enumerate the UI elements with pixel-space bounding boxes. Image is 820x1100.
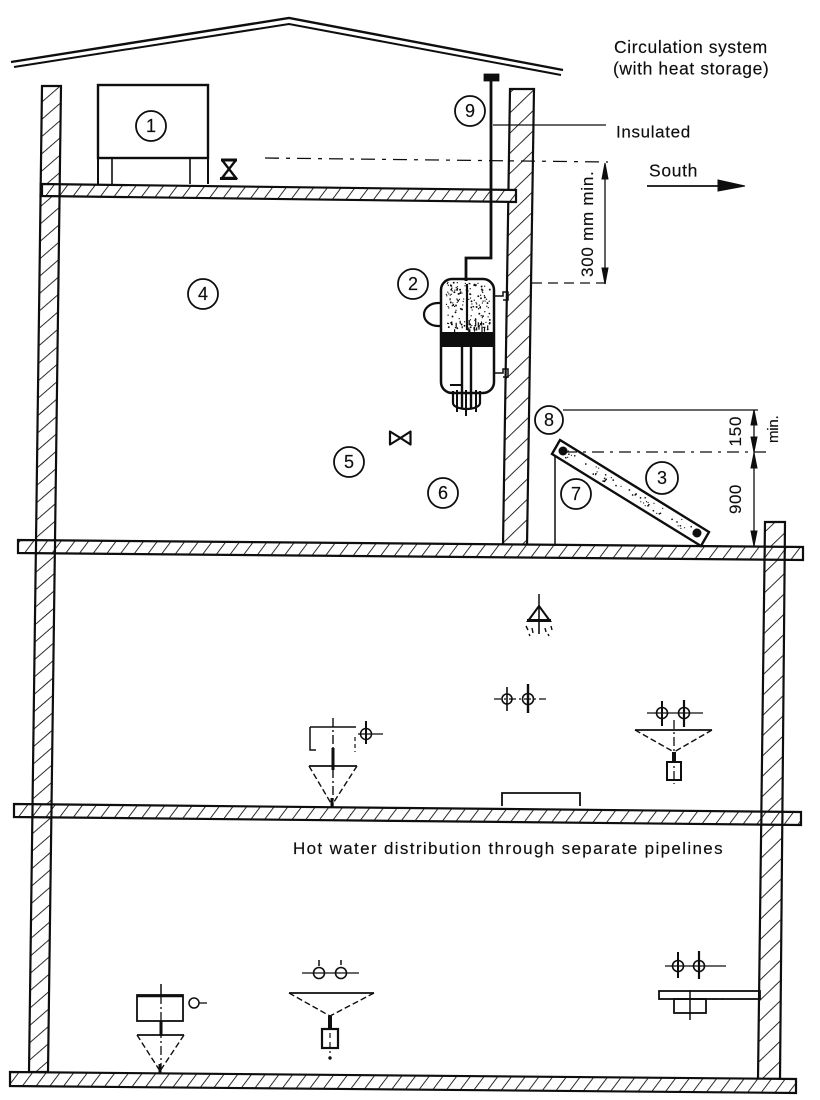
svg-text:South: South bbox=[649, 161, 698, 181]
svg-text:1: 1 bbox=[146, 116, 156, 136]
svg-text:Circulation system: Circulation system bbox=[614, 37, 768, 57]
svg-text:6: 6 bbox=[438, 483, 448, 503]
svg-text:Hot water distribution through: Hot water distribution through separate … bbox=[293, 839, 724, 858]
svg-text:min.: min. bbox=[765, 415, 782, 443]
svg-text:7: 7 bbox=[571, 484, 581, 504]
svg-text:9: 9 bbox=[465, 101, 475, 121]
svg-text:3: 3 bbox=[657, 468, 667, 488]
svg-text:(with heat storage): (with heat storage) bbox=[613, 59, 769, 79]
svg-text:8: 8 bbox=[544, 410, 554, 430]
svg-text:900: 900 bbox=[726, 484, 745, 514]
svg-text:5: 5 bbox=[344, 452, 354, 472]
svg-text:150: 150 bbox=[726, 416, 745, 447]
svg-text:4: 4 bbox=[198, 284, 208, 304]
svg-text:2: 2 bbox=[408, 274, 418, 294]
svg-text:Insulated: Insulated bbox=[616, 123, 691, 142]
svg-text:300 mm min.: 300 mm min. bbox=[578, 171, 597, 278]
